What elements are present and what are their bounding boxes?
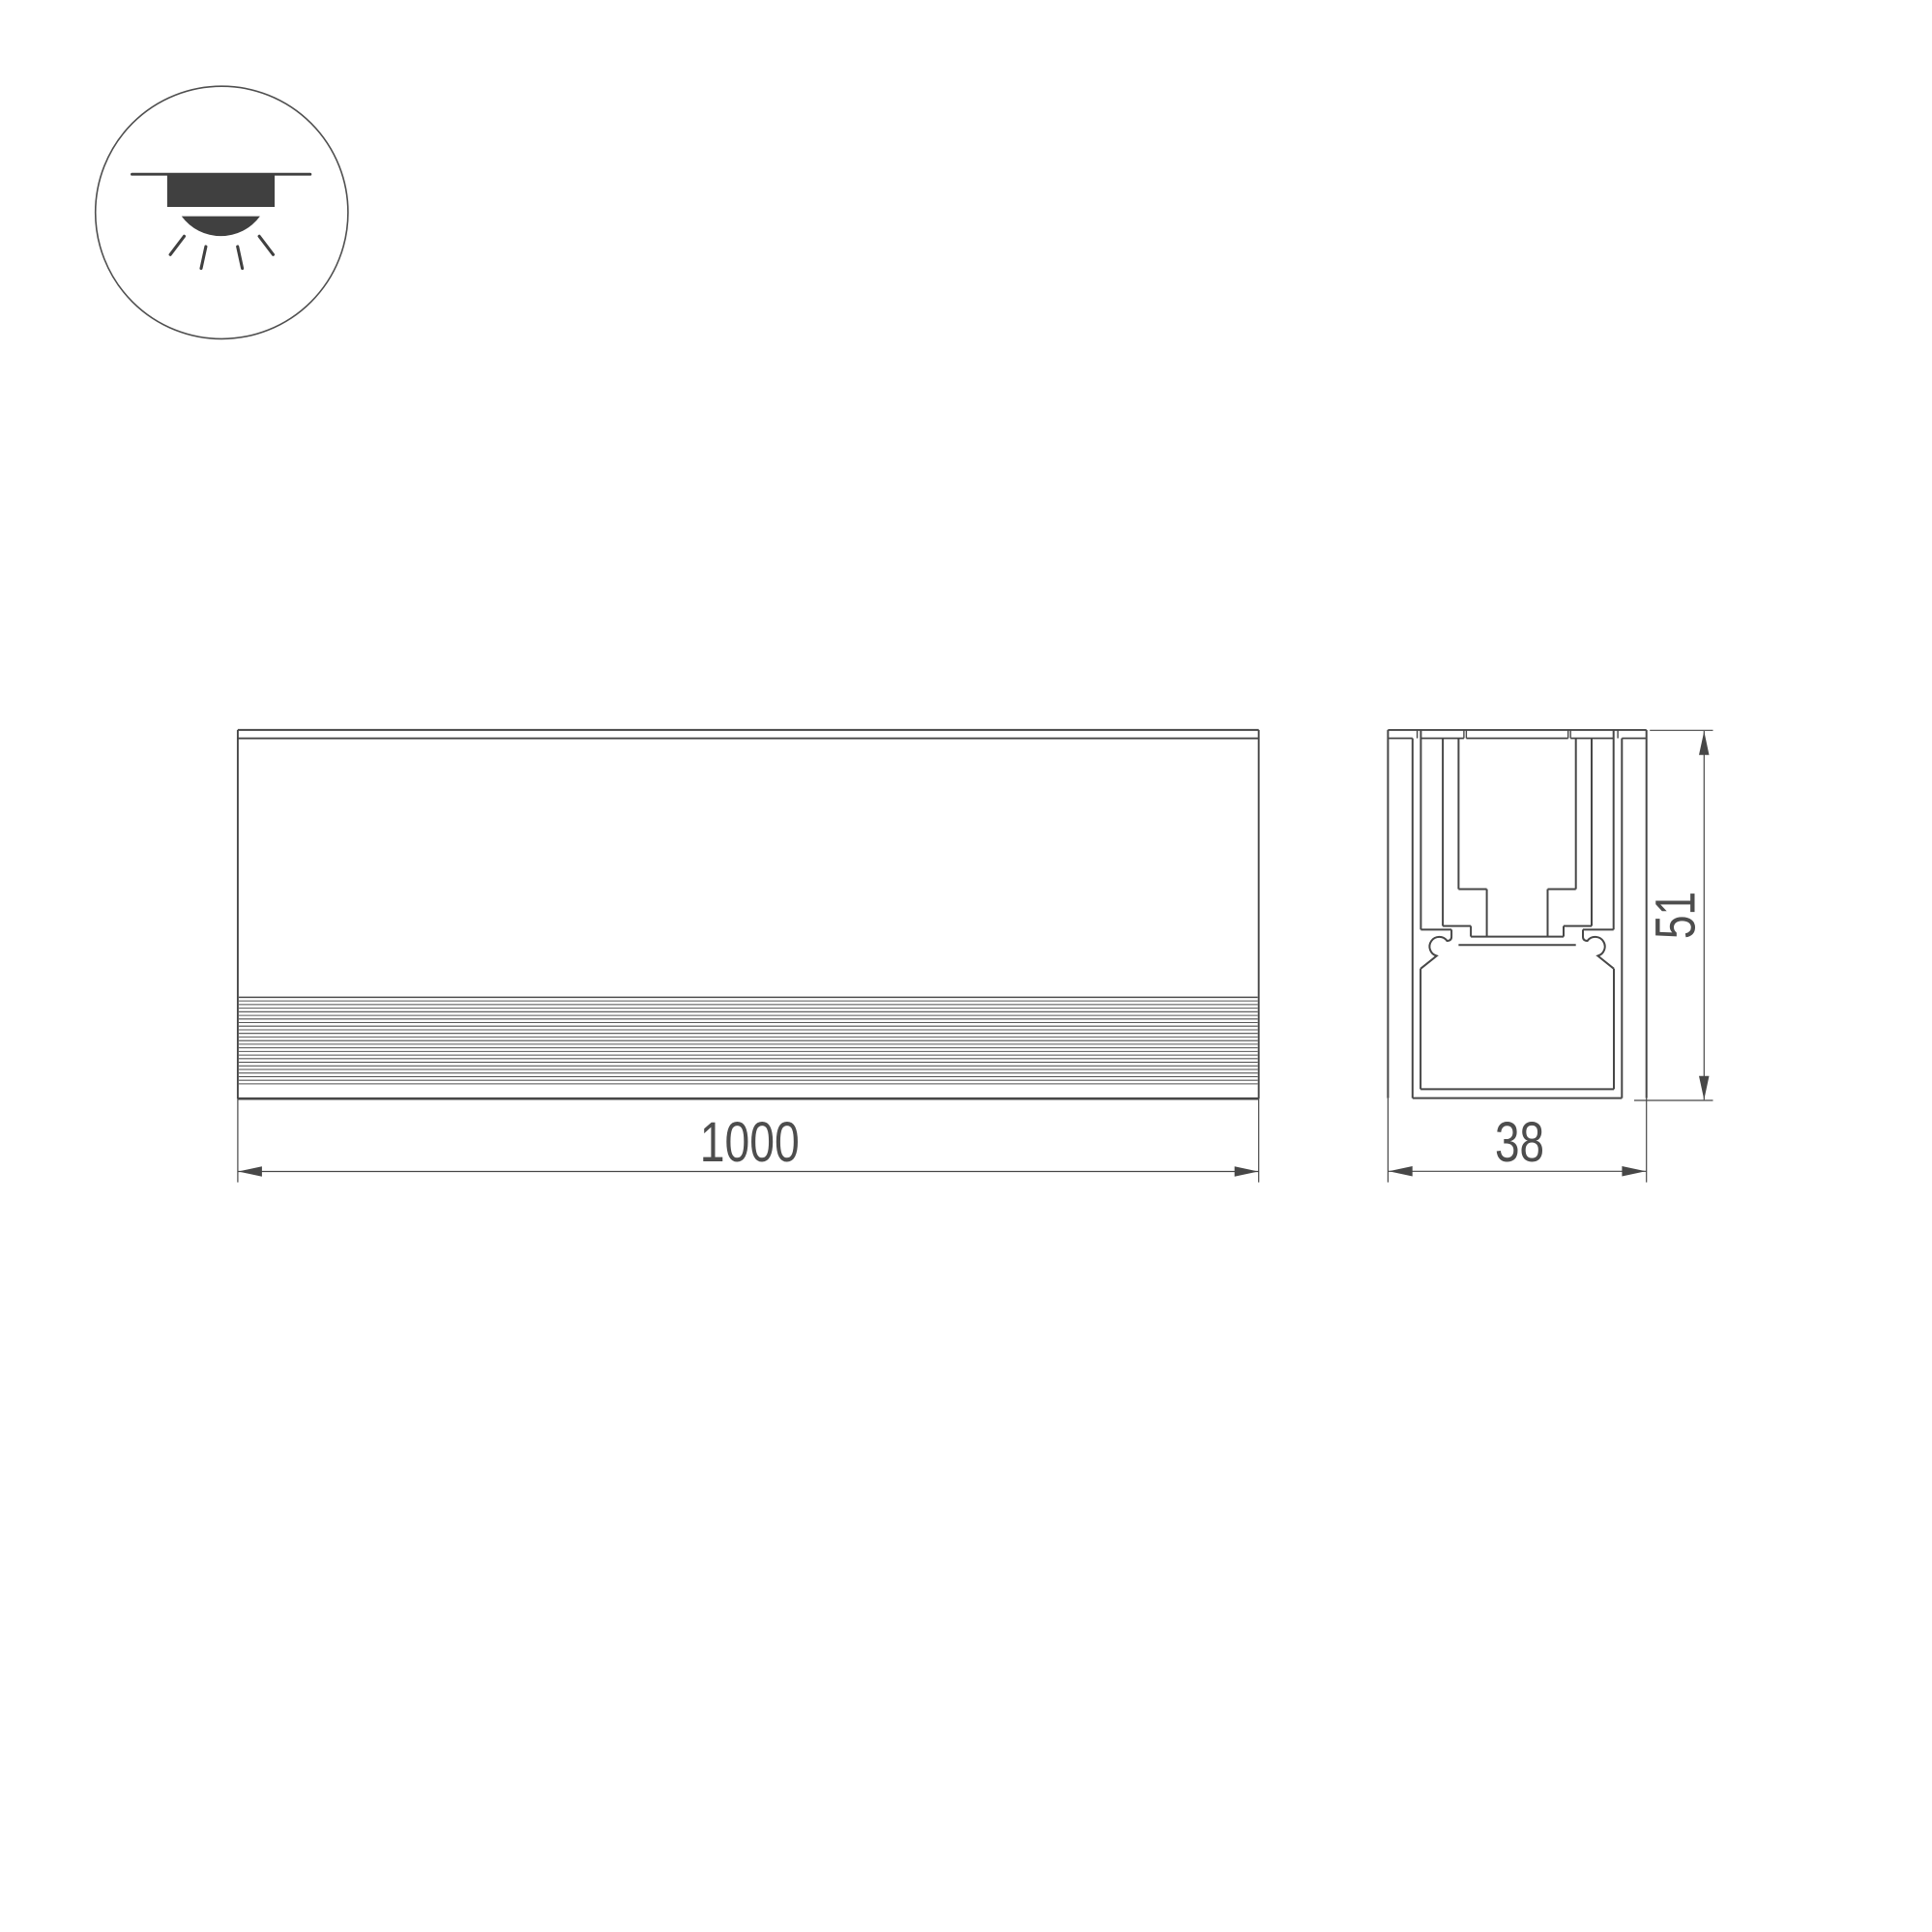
svg-text:38: 38 bbox=[1495, 1111, 1544, 1174]
svg-text:1000: 1000 bbox=[700, 1111, 800, 1174]
svg-text:51: 51 bbox=[1644, 892, 1707, 939]
